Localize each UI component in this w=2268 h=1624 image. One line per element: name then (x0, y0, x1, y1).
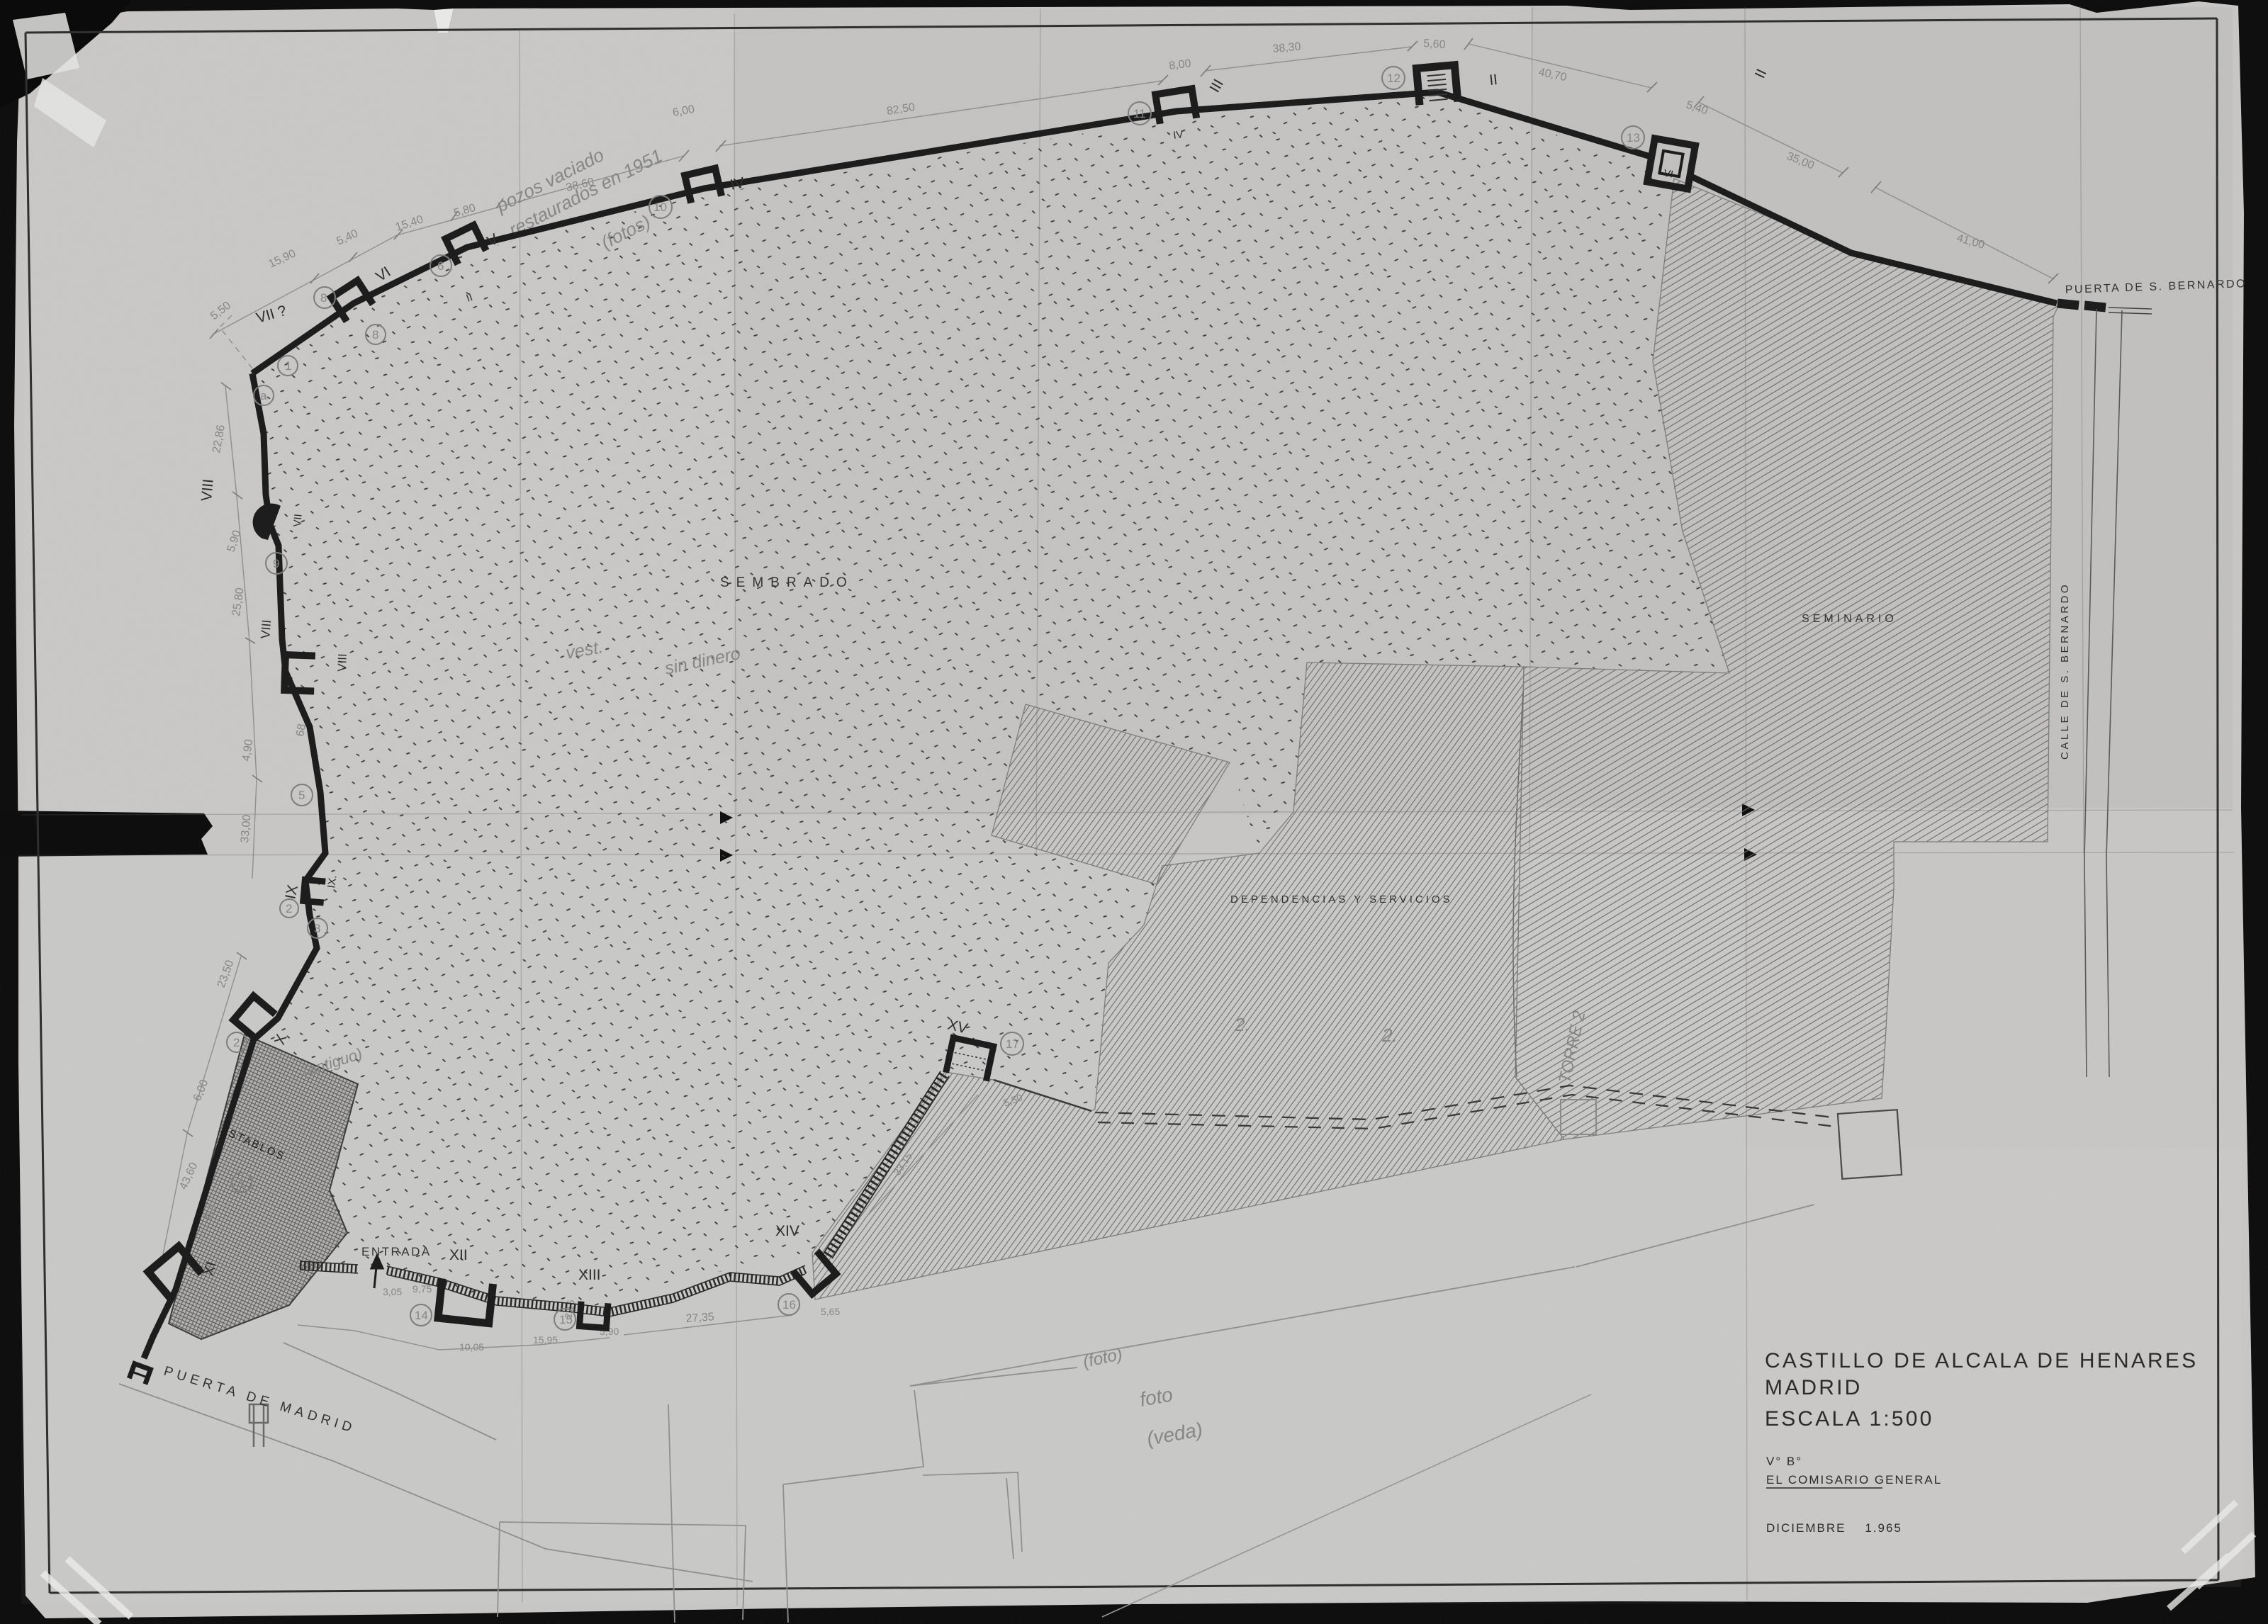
svg-text:9: 9 (273, 557, 279, 570)
svg-text:3,05: 3,05 (383, 1286, 402, 1297)
svg-text:1: 1 (285, 359, 291, 373)
svg-text:VII: VII (291, 514, 305, 528)
svg-text:VIII: VIII (335, 653, 349, 672)
svg-text:8: 8 (320, 291, 327, 305)
svg-text:XIV: XIV (775, 1223, 799, 1239)
svg-text:2: 2 (233, 1036, 240, 1049)
svg-text:16: 16 (782, 1298, 796, 1312)
svg-text:VIII: VIII (258, 619, 274, 640)
svg-text:IX.: IX. (325, 874, 339, 889)
svg-text:3: 3 (314, 922, 320, 935)
svg-text:CASTILLO DE ALCALA DE HENA: CASTILLO DE ALCALA DE HENARES (1765, 1349, 2198, 1372)
svg-text:2: 2 (286, 902, 292, 915)
svg-text:SEMBRADO: SEMBRADO (720, 575, 854, 590)
svg-text:14: 14 (415, 1309, 428, 1322)
svg-text:ENTRADA: ENTRADA (361, 1245, 432, 1258)
svg-text:EL COMISARIO GENERAL: EL COMISARIO GENERAL (1766, 1473, 1942, 1487)
svg-text:V° B°: V° B° (1766, 1455, 1802, 1468)
svg-text:II: II (1488, 72, 1498, 89)
svg-text:XII: XII (449, 1247, 468, 1263)
svg-text:27,35: 27,35 (685, 1311, 714, 1325)
svg-text:13: 13 (1627, 131, 1640, 145)
svg-text:XIII: XIII (578, 1267, 601, 1283)
svg-text:2.: 2. (1234, 1014, 1250, 1035)
svg-text:8: 8 (372, 328, 378, 342)
svg-text:1: 1 (238, 1176, 245, 1190)
svg-text:VI: VI (1663, 167, 1674, 180)
svg-text:5: 5 (298, 789, 305, 802)
svg-text:15: 15 (559, 1313, 573, 1326)
svg-text:CALLE DE S. BERNARDO: CALLE DE S. BERNARDO (2059, 582, 2071, 760)
svg-text:SEMINARIO: SEMINARIO (1802, 613, 1897, 625)
svg-text:10: 10 (653, 201, 667, 214)
svg-text:38,30: 38,30 (1272, 41, 1301, 55)
svg-text:11: 11 (1133, 107, 1146, 120)
svg-text:6: 6 (437, 259, 444, 273)
svg-text:MADRID: MADRID (1765, 1376, 1863, 1399)
svg-text:VIII: VIII (198, 478, 217, 502)
svg-text:33,00: 33,00 (239, 814, 253, 843)
svg-text:IV: IV (1172, 128, 1184, 142)
svg-text:5,60: 5,60 (1423, 38, 1446, 51)
svg-text:DICIEMBRE 1.965: DICIEMBRE 1.965 (1766, 1521, 1902, 1535)
svg-text:2.: 2. (1381, 1025, 1398, 1046)
svg-text:DEPENDENCIAS Y SERVICIOS: DEPENDENCIAS Y SERVICIOS (1230, 893, 1453, 906)
svg-text:12: 12 (1387, 72, 1400, 85)
svg-text:17: 17 (1006, 1037, 1019, 1051)
svg-text:15,95: 15,95 (533, 1334, 558, 1346)
svg-text:ESCALA 1:500: ESCALA 1:500 (1765, 1407, 1934, 1431)
svg-text:a: a (260, 389, 267, 402)
svg-text:10,05: 10,05 (459, 1341, 484, 1353)
svg-text:5,65: 5,65 (821, 1306, 840, 1317)
